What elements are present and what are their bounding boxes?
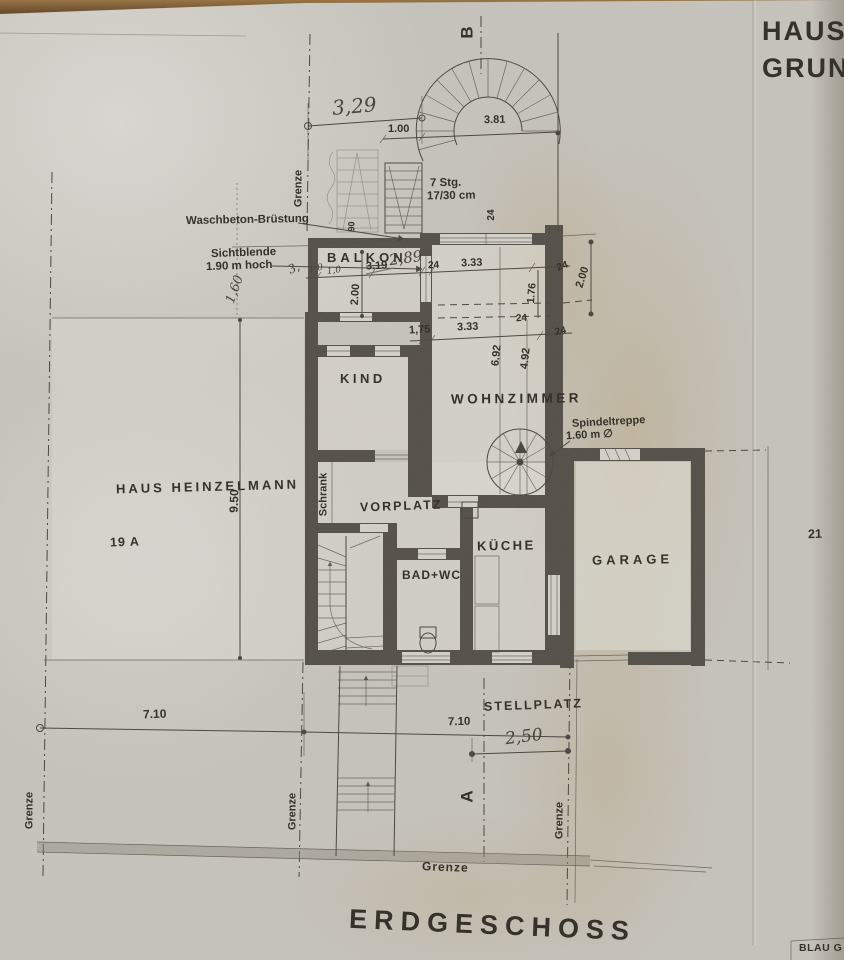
dim-24-a: 24 [428,261,439,271]
dim-950: 9.50 [227,481,240,521]
grenze-label-right: Grenze [555,791,566,851]
dim-100: 1.00 [388,124,409,135]
dim-289-handwritten: 2,89 [388,249,423,269]
room-label-wohnzimmer: WOHNZIMMER [451,391,582,406]
scanned-floorplan-page: HAUS H GRUNDR BALKON KIND WOHNZIMMER VOR… [0,0,844,960]
neighbor-parcel-number: 21 [808,528,822,541]
annotation-stairs-1: 7 Stg. [430,178,462,190]
floorplan-drawing [0,0,844,960]
section-marker-b: B [459,26,476,38]
room-label-bad-wc: BAD+WC [402,569,461,581]
dim-329-handwritten: 3,29 [331,94,377,118]
header-title-line2: GRUNDR [762,55,844,82]
grenze-label-left: Grenze [25,781,36,841]
scan-grain [0,0,844,960]
section-marker-a: A [459,790,476,802]
dim-175: 1,75 [409,324,431,336]
header-title-line1: HAUS H [762,18,844,45]
grenze-label-mid: Grenze [288,782,299,842]
grenze-label-top: Grenze [294,159,305,219]
parcel-number-label: 19 A [110,535,140,549]
dim-381: 3.81 [484,115,506,126]
dim-24-c: 24 [487,205,497,225]
annotation-waschbeton: Waschbeton-Brüstung [186,214,309,228]
annotation-stairs-2: 17/30 cm [427,191,476,203]
dim-710-left: 7.10 [143,708,167,721]
annotation-schrank: Schrank [319,465,330,525]
dim-333-b: 3.33 [457,322,479,334]
dim-24-d: 24 [516,314,528,325]
dim-250-handwritten: 2,50 [504,727,544,748]
dim-333-a: 3.33 [461,258,483,270]
stamp-text: BLAU G [799,943,842,954]
room-label-vorplatz: VORPLATZ [360,499,443,514]
dim-710-right: 7.10 [448,717,471,729]
grenze-label-bottom: Grenze [422,860,469,874]
dim-90: 90 [348,217,357,237]
room-label-kueche: KÜCHE [477,538,536,552]
room-label-garage: GARAGE [592,552,673,566]
paper-fold-crease [752,0,756,945]
room-label-kind: KIND [340,372,386,385]
dim-319-crossed-out: 3.19 [366,260,388,272]
